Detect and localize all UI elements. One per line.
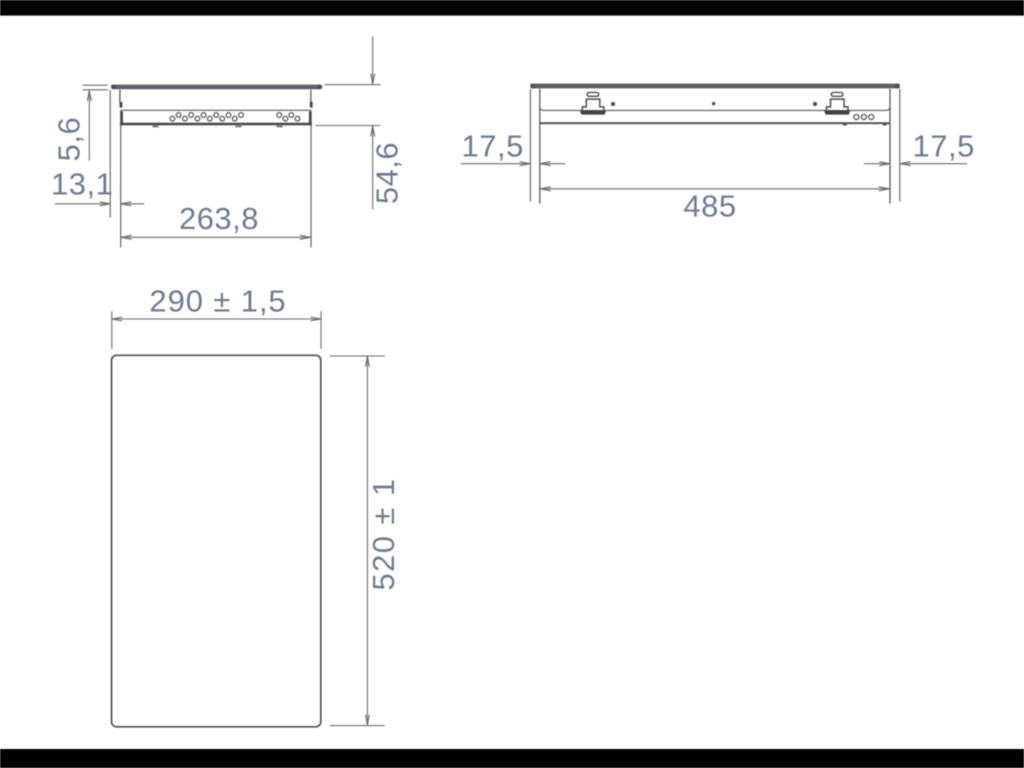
svg-text:290 ± 1,5: 290 ± 1,5 <box>149 284 286 319</box>
svg-text:5,6: 5,6 <box>52 117 87 162</box>
svg-text:54,6: 54,6 <box>370 142 405 204</box>
svg-text:485: 485 <box>683 188 736 223</box>
svg-text:17,5: 17,5 <box>913 128 975 163</box>
svg-text:263,8: 263,8 <box>179 201 259 236</box>
svg-text:13,1: 13,1 <box>51 166 113 201</box>
svg-text:17,5: 17,5 <box>462 128 524 163</box>
svg-text:520 ± 1: 520 ± 1 <box>366 477 401 590</box>
